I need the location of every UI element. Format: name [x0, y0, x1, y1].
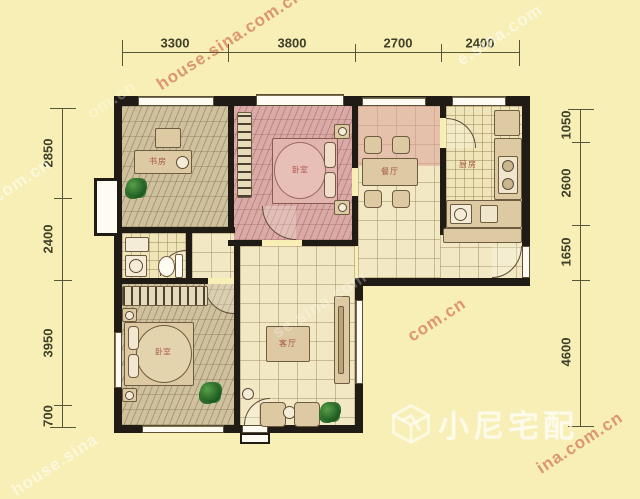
cube-logo-icon	[390, 403, 432, 445]
kitchen-window	[452, 96, 506, 106]
sink-basin	[454, 208, 467, 221]
dim-tick	[519, 40, 520, 66]
dining-window	[362, 97, 426, 106]
bedroom-top-label: 卧室	[292, 165, 308, 176]
nightstand-lamp	[125, 391, 134, 400]
study-chair	[176, 156, 189, 169]
watermark: com.cn	[404, 294, 470, 346]
living-plant	[320, 402, 340, 422]
dining-chair-3	[364, 190, 382, 208]
dim-tick	[355, 44, 356, 62]
study-label: 书房	[149, 158, 167, 166]
dim-tick	[54, 280, 72, 281]
bedroom-top-wardrobe	[237, 112, 252, 198]
stove-burner-1	[502, 160, 514, 172]
living-window	[355, 300, 363, 384]
bedroom-bottom-window	[142, 425, 224, 433]
washer-drum	[129, 259, 143, 273]
bedroom-bottom-label: 卧室	[155, 347, 171, 358]
living-label: 客厅	[279, 340, 297, 348]
dim-left-1: 2850	[41, 139, 56, 168]
armchair-2	[294, 402, 320, 427]
dim-tick	[50, 108, 76, 109]
dining-chair-4	[392, 190, 410, 208]
nightstand-lamp	[338, 203, 347, 212]
kitchen-label: 厨房	[459, 161, 477, 169]
wall-bedroom-right-b	[352, 196, 358, 246]
toilet-bowl	[158, 256, 175, 277]
dim-tick	[572, 142, 590, 143]
wall-living-bedroom	[234, 246, 240, 425]
dim-tick	[572, 225, 590, 226]
study-window	[138, 96, 214, 106]
wall-kitchen-left-a	[440, 106, 446, 118]
armchair-1	[260, 402, 286, 427]
floor-lamp	[242, 388, 254, 400]
dining-chair-1	[364, 136, 382, 154]
study-plant	[126, 178, 146, 198]
stove-burner-2	[502, 178, 514, 190]
bedroom-top-pillow-1	[324, 142, 336, 168]
dim-tick	[228, 44, 229, 62]
bedroom-top-pillow-2	[324, 172, 336, 198]
dim-line-top	[122, 52, 520, 53]
bay-window	[94, 178, 120, 236]
logo: 小尼宅配	[390, 401, 578, 446]
bedroom-bottom-pillow-1	[128, 326, 139, 350]
dim-tick	[441, 44, 442, 62]
dim-line-left	[62, 108, 63, 427]
toilet-tank	[175, 254, 183, 278]
dim-right-2: 2600	[559, 169, 574, 198]
study-cabinet	[155, 128, 181, 148]
bathroom-sink	[125, 237, 149, 252]
wall-bathroom-bottom	[114, 278, 208, 284]
dim-top-1: 3300	[161, 36, 190, 51]
wall-bathroom-right	[186, 233, 192, 278]
bedroom-bottom-plant	[200, 382, 221, 403]
kitchen-fridge	[494, 110, 520, 136]
floor-plan-image: 3300 3800 2700 2400 2850 2400 3950 700 1…	[0, 0, 640, 499]
dim-left-2: 2400	[41, 225, 56, 254]
bedroom-bottom-pillow-2	[128, 354, 139, 378]
dim-left-4: 700	[41, 405, 56, 427]
wall-study-bottom	[114, 227, 235, 233]
dim-line-right	[580, 109, 581, 426]
dim-tick	[54, 405, 72, 406]
wall-bottom-right-section	[355, 278, 530, 286]
kitchen-hob-unit	[480, 205, 498, 223]
bedroom-bottom-side-window	[114, 332, 122, 388]
bedroom-bottom-wardrobe	[122, 286, 208, 306]
bedroom-top-window	[256, 94, 344, 106]
dim-tick	[122, 40, 123, 66]
dim-right-4: 4600	[559, 338, 574, 367]
nightstand-lamp	[125, 311, 134, 320]
nightstand-lamp	[338, 127, 347, 136]
dim-top-3: 2700	[384, 36, 413, 51]
dim-left-3: 3950	[41, 329, 56, 358]
dining-label: 餐厅	[381, 168, 399, 176]
wall-bedroom-bottom-b	[302, 240, 358, 246]
service-door-opening	[522, 246, 530, 278]
logo-text: 小尼宅配	[438, 401, 578, 446]
dim-top-4: 2400	[466, 36, 495, 51]
dining-chair-2	[392, 136, 410, 154]
dim-right-1: 1050	[559, 111, 574, 140]
tv-set	[338, 306, 344, 374]
dim-top-2: 3800	[278, 36, 307, 51]
wall-bedroom-right-a	[352, 106, 358, 168]
dim-right-3: 1650	[559, 238, 574, 267]
wall-study-bedroom	[228, 106, 234, 233]
dim-tick	[572, 280, 590, 281]
passage-cabinet	[443, 228, 522, 243]
watermark: house.sina	[8, 430, 102, 499]
entry-step	[240, 433, 270, 444]
dim-tick	[54, 198, 72, 199]
dim-tick	[50, 427, 76, 428]
